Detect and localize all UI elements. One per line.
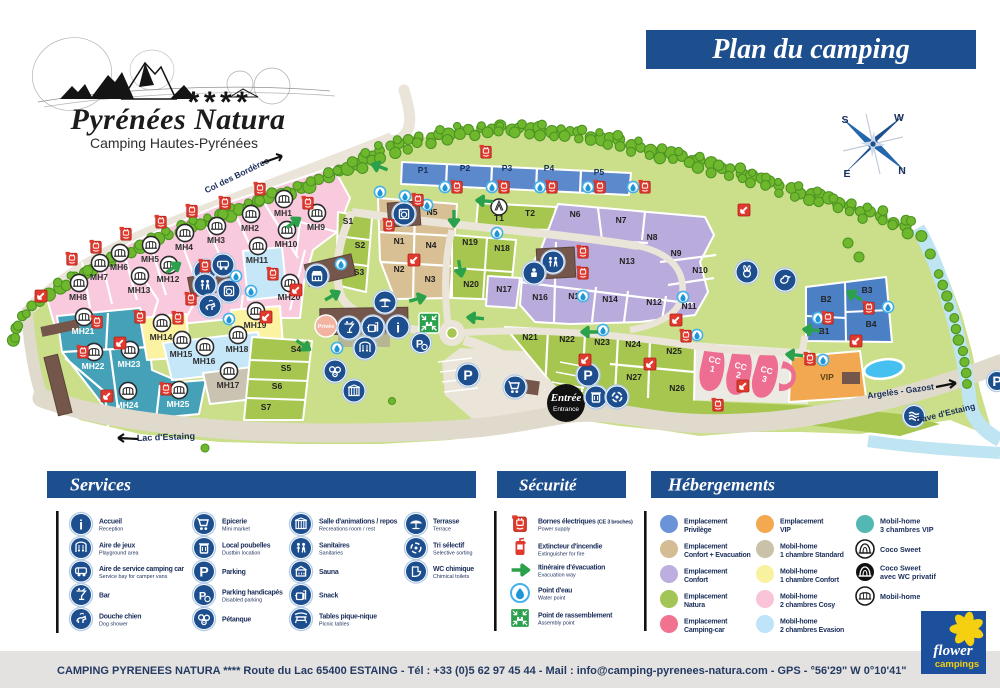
svg-text:Sauna: Sauna <box>319 569 339 576</box>
svg-text:B4: B4 <box>866 319 877 329</box>
svg-text:N20: N20 <box>463 279 479 289</box>
svg-text:MH10: MH10 <box>275 239 298 249</box>
svg-text:Reception: Reception <box>99 527 123 533</box>
svg-text:Entrée: Entrée <box>550 392 582 404</box>
svg-text:MH25: MH25 <box>167 399 190 409</box>
svg-text:S6: S6 <box>272 381 283 391</box>
svg-text:Sanitaires: Sanitaires <box>319 543 350 550</box>
svg-text:Mobil-home: Mobil-home <box>880 592 920 601</box>
svg-text:N19: N19 <box>462 237 478 247</box>
svg-text:Evacuation way: Evacuation way <box>538 573 576 579</box>
svg-text:MH11: MH11 <box>246 255 268 265</box>
svg-text:Parking: Parking <box>222 569 246 576</box>
svg-text:N26: N26 <box>669 383 685 393</box>
svg-text:Mobil-home: Mobil-home <box>780 619 818 626</box>
svg-text:P5: P5 <box>594 167 605 177</box>
svg-text:S1: S1 <box>343 216 354 226</box>
svg-text:S5: S5 <box>281 363 292 373</box>
svg-text:MH17: MH17 <box>217 380 240 390</box>
svg-text:N9: N9 <box>671 248 682 258</box>
svg-text:MH22: MH22 <box>82 361 105 371</box>
svg-text:MH12: MH12 <box>157 274 180 284</box>
svg-text:S2: S2 <box>355 240 366 250</box>
svg-text:VIP: VIP <box>780 527 791 534</box>
svg-text:N: N <box>898 165 906 177</box>
svg-text:Camping-car: Camping-car <box>684 627 725 634</box>
svg-text:P: P <box>992 373 1000 389</box>
svg-text:Entrance: Entrance <box>553 406 579 413</box>
svg-text:Mobil-home: Mobil-home <box>780 594 818 601</box>
svg-text:3 chambres VIP: 3 chambres VIP <box>880 525 934 534</box>
svg-text:CAMPING PYRENEES NATURA **** R: CAMPING PYRENEES NATURA **** Route du La… <box>57 665 907 677</box>
svg-text:Dustbin location: Dustbin location <box>222 551 260 557</box>
svg-text:MH8: MH8 <box>69 292 87 302</box>
svg-text:Coco Sweet: Coco Sweet <box>880 545 921 554</box>
svg-text:N2: N2 <box>394 264 405 274</box>
svg-text:1 chambre Confort: 1 chambre Confort <box>780 577 840 584</box>
svg-text:2 chambres Cosy: 2 chambres Cosy <box>780 602 835 609</box>
svg-text:i: i <box>396 320 400 336</box>
svg-text:MH24: MH24 <box>116 400 139 410</box>
svg-text:P1: P1 <box>418 165 429 175</box>
svg-text:MH13: MH13 <box>128 285 151 295</box>
svg-text:Mini market: Mini market <box>222 527 250 533</box>
svg-text:Bornes électriques (CE 3 broch: Bornes électriques (CE 3 broches) <box>538 519 633 526</box>
svg-text:Assembly point: Assembly point <box>538 621 575 627</box>
svg-text:Itinéraire d'évacuation: Itinéraire d'évacuation <box>538 565 605 572</box>
svg-text:avec WC privatif: avec WC privatif <box>880 572 937 581</box>
svg-text:Snack: Snack <box>319 593 338 600</box>
svg-text:MH21: MH21 <box>72 326 95 336</box>
svg-text:Extincteur d'incendie: Extincteur d'incendie <box>538 544 603 551</box>
svg-text:Bar: Bar <box>99 593 110 600</box>
svg-text:Privée: Privée <box>318 324 335 330</box>
svg-text:N22: N22 <box>559 334 575 344</box>
svg-text:W: W <box>894 112 904 124</box>
svg-text:Power supply: Power supply <box>538 527 571 533</box>
svg-text:Emplacement: Emplacement <box>684 619 728 626</box>
svg-text:Water point: Water point <box>538 596 566 602</box>
svg-text:N23: N23 <box>594 337 610 347</box>
svg-text:Terrace: Terrace <box>433 527 451 533</box>
svg-text:Plan du camping: Plan du camping <box>711 34 910 65</box>
svg-text:Tri sélectif: Tri sélectif <box>433 543 465 550</box>
svg-text:Privilège: Privilège <box>684 527 712 534</box>
svg-text:Point d'eau: Point d'eau <box>538 588 572 595</box>
svg-text:Dog shower: Dog shower <box>99 622 128 628</box>
svg-text:Tables pique-nique: Tables pique-nique <box>319 614 377 621</box>
svg-text:MH4: MH4 <box>175 242 193 252</box>
svg-text:P: P <box>463 367 472 383</box>
svg-text:Camping Hautes-Pyrénées: Camping Hautes-Pyrénées <box>90 135 258 151</box>
svg-text:Salle d'animations / repos: Salle d'animations / repos <box>319 519 398 526</box>
svg-text:MH7: MH7 <box>90 272 108 282</box>
svg-text:E: E <box>843 168 850 180</box>
svg-text:MH2: MH2 <box>241 223 259 233</box>
svg-text:N17: N17 <box>496 284 512 294</box>
svg-text:S7: S7 <box>261 402 272 412</box>
svg-text:S: S <box>841 114 848 126</box>
svg-text:Emplacement: Emplacement <box>780 519 824 526</box>
svg-text:N13: N13 <box>619 256 635 266</box>
svg-text:Extinguisher for fire: Extinguisher for fire <box>538 552 584 558</box>
svg-text:N3: N3 <box>425 274 436 284</box>
svg-text:N24: N24 <box>625 339 641 349</box>
svg-text:Mobil-home: Mobil-home <box>780 569 818 576</box>
svg-text:B2: B2 <box>821 294 832 304</box>
svg-text:Emplacement: Emplacement <box>684 569 728 576</box>
svg-text:Lac d'Estaing: Lac d'Estaing <box>137 431 195 443</box>
svg-text:N27: N27 <box>626 372 642 382</box>
svg-text:Chimical toilets: Chimical toilets <box>433 574 470 580</box>
svg-text:Hébergements: Hébergements <box>667 475 775 495</box>
svg-text:Emplacement: Emplacement <box>684 519 728 526</box>
svg-text:Natura: Natura <box>684 602 705 609</box>
svg-text:Aire de jeux: Aire de jeux <box>99 543 135 550</box>
svg-text:S3: S3 <box>354 267 365 277</box>
svg-text:N18: N18 <box>494 243 510 253</box>
svg-text:MH1: MH1 <box>274 208 292 218</box>
svg-text:MH14: MH14 <box>150 332 173 342</box>
svg-text:Confort: Confort <box>684 577 709 584</box>
svg-text:P: P <box>583 367 592 383</box>
svg-text:flower: flower <box>933 643 972 659</box>
svg-text:Sécurité: Sécurité <box>519 476 578 495</box>
svg-text:MH23: MH23 <box>118 359 141 369</box>
svg-text:N8: N8 <box>647 232 658 242</box>
svg-text:i: i <box>79 517 83 533</box>
svg-text:Terrasse: Terrasse <box>433 519 460 526</box>
svg-text:P2: P2 <box>460 163 471 173</box>
svg-text:Emplacement: Emplacement <box>684 544 728 551</box>
svg-text:N21: N21 <box>522 332 538 342</box>
svg-text:MH6: MH6 <box>110 262 128 272</box>
svg-text:MH5: MH5 <box>141 254 159 264</box>
svg-text:MH18: MH18 <box>226 344 249 354</box>
svg-text:N1: N1 <box>394 236 405 246</box>
svg-text:Service bay for camper vans: Service bay for camper vans <box>99 574 168 580</box>
svg-text:1 chambre Standard: 1 chambre Standard <box>780 552 844 559</box>
svg-text:N14: N14 <box>602 294 618 304</box>
svg-text:Disabled parking: Disabled parking <box>222 598 262 604</box>
svg-text:VIP: VIP <box>820 372 834 382</box>
svg-text:P3: P3 <box>502 163 513 173</box>
svg-text:MH16: MH16 <box>193 356 216 366</box>
svg-text:WC chimique: WC chimique <box>433 566 474 573</box>
svg-text:Confort + Evacuation: Confort + Evacuation <box>684 552 751 559</box>
svg-text:P4: P4 <box>544 163 555 173</box>
svg-text:Aire de service camping car: Aire de service camping car <box>99 566 184 573</box>
svg-text:Services: Services <box>70 475 131 495</box>
svg-text:Playground area: Playground area <box>99 551 139 557</box>
svg-text:Point de rassemblement: Point de rassemblement <box>538 613 613 620</box>
svg-text:N6: N6 <box>570 209 581 219</box>
svg-text:N7: N7 <box>616 215 627 225</box>
svg-text:Selective sorting: Selective sorting <box>433 551 473 557</box>
svg-text:Accueil: Accueil <box>99 519 122 526</box>
svg-text:T2: T2 <box>525 208 535 218</box>
svg-text:2 chambres Evasion: 2 chambres Evasion <box>780 627 844 634</box>
svg-text:N10: N10 <box>692 265 708 275</box>
svg-text:campings: campings <box>935 659 979 670</box>
svg-text:B1: B1 <box>819 326 830 336</box>
svg-text:P: P <box>199 564 208 580</box>
svg-text:Epicerie: Epicerie <box>222 519 247 526</box>
svg-text:Picnic tables: Picnic tables <box>319 622 350 628</box>
svg-text:S4: S4 <box>291 344 302 354</box>
svg-text:Pétanque: Pétanque <box>222 617 251 624</box>
svg-text:Mobil-home: Mobil-home <box>780 544 818 551</box>
svg-text:Recreations room / rest: Recreations room / rest <box>319 527 376 533</box>
svg-text:MH3: MH3 <box>207 235 225 245</box>
svg-text:N16: N16 <box>532 292 548 302</box>
svg-text:Pyrénées Natura: Pyrénées Natura <box>70 103 286 136</box>
svg-text:MH9: MH9 <box>307 222 325 232</box>
svg-text:Douche chien: Douche chien <box>99 614 141 621</box>
svg-text:Sanitaries: Sanitaries <box>319 551 343 557</box>
svg-text:Emplacement: Emplacement <box>684 594 728 601</box>
svg-text:B3: B3 <box>862 285 873 295</box>
svg-text:Local poubelles: Local poubelles <box>222 543 271 550</box>
svg-text:N12: N12 <box>646 297 662 307</box>
svg-text:N4: N4 <box>426 240 437 250</box>
svg-text:Parking handicapés: Parking handicapés <box>222 590 283 597</box>
svg-text:MH15: MH15 <box>170 349 193 359</box>
svg-text:N25: N25 <box>666 346 682 356</box>
